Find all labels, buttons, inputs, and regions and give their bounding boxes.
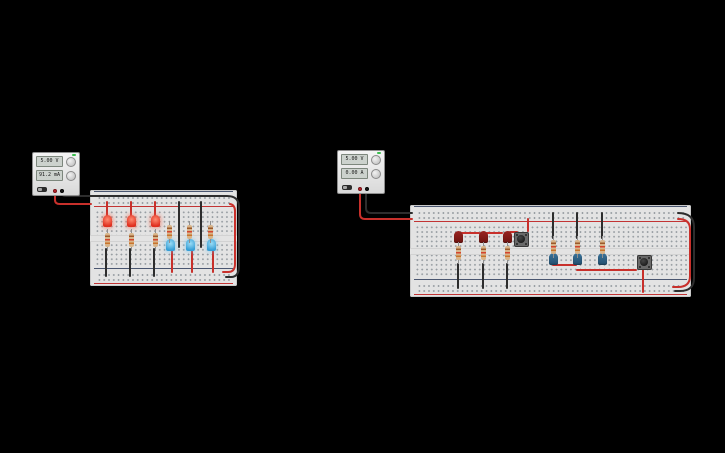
voltage-display: 5.00 V (341, 154, 368, 165)
led-red-on[interactable] (103, 215, 112, 227)
resistor-body (208, 225, 213, 239)
resistor[interactable] (129, 229, 134, 251)
resistor[interactable] (551, 236, 556, 258)
resistor[interactable] (153, 229, 158, 251)
current-knob[interactable] (66, 171, 76, 181)
resistor-body (456, 246, 461, 260)
resistor-body (153, 233, 158, 247)
voltage-display: 5.00 V (36, 156, 63, 167)
resistor[interactable] (575, 236, 580, 258)
rail-link-red-right[interactable] (673, 219, 690, 287)
resistor-body (481, 246, 486, 260)
resistor-body (505, 246, 510, 260)
resistor[interactable] (105, 229, 110, 251)
resistor-body (551, 240, 556, 254)
voltage-knob[interactable] (371, 155, 381, 165)
current-display: 91.2 mA (36, 170, 63, 181)
resistor-body (129, 233, 134, 247)
resistor[interactable] (600, 236, 605, 258)
pushbutton[interactable] (637, 255, 652, 270)
power-indicator-icon (72, 154, 76, 156)
power-switch[interactable] (37, 187, 47, 192)
negative-terminal[interactable] (365, 187, 369, 191)
resistor[interactable] (208, 221, 213, 243)
resistor[interactable] (481, 242, 486, 264)
power-supply-right[interactable]: 5.00 V 0.00 A (337, 150, 385, 194)
led-red-on[interactable] (151, 215, 160, 227)
resistor[interactable] (505, 242, 510, 264)
power-indicator-icon (377, 152, 381, 154)
resistor-body (105, 233, 110, 247)
rail-link-black-right[interactable] (675, 213, 694, 291)
led-red-on[interactable] (127, 215, 136, 227)
power-supply-left[interactable]: 5.00 V 91.2 mA (32, 152, 80, 196)
voltage-knob[interactable] (66, 157, 76, 167)
rail-link-red-left[interactable] (223, 204, 235, 272)
current-knob[interactable] (371, 169, 381, 179)
resistor[interactable] (167, 221, 172, 243)
resistor-body (187, 225, 192, 239)
resistor[interactable] (456, 242, 461, 264)
power-switch[interactable] (342, 185, 352, 190)
resistor[interactable] (187, 221, 192, 243)
resistor-body (575, 240, 580, 254)
current-display: 0.00 A (341, 168, 368, 179)
positive-terminal[interactable] (53, 189, 57, 193)
resistor-body (167, 225, 172, 239)
circuit-canvas: 5.00 V 91.2 mA 5.00 V 0.00 A (0, 0, 725, 453)
positive-terminal[interactable] (358, 187, 362, 191)
pushbutton[interactable] (514, 232, 529, 247)
negative-terminal[interactable] (60, 189, 64, 193)
resistor-body (600, 240, 605, 254)
